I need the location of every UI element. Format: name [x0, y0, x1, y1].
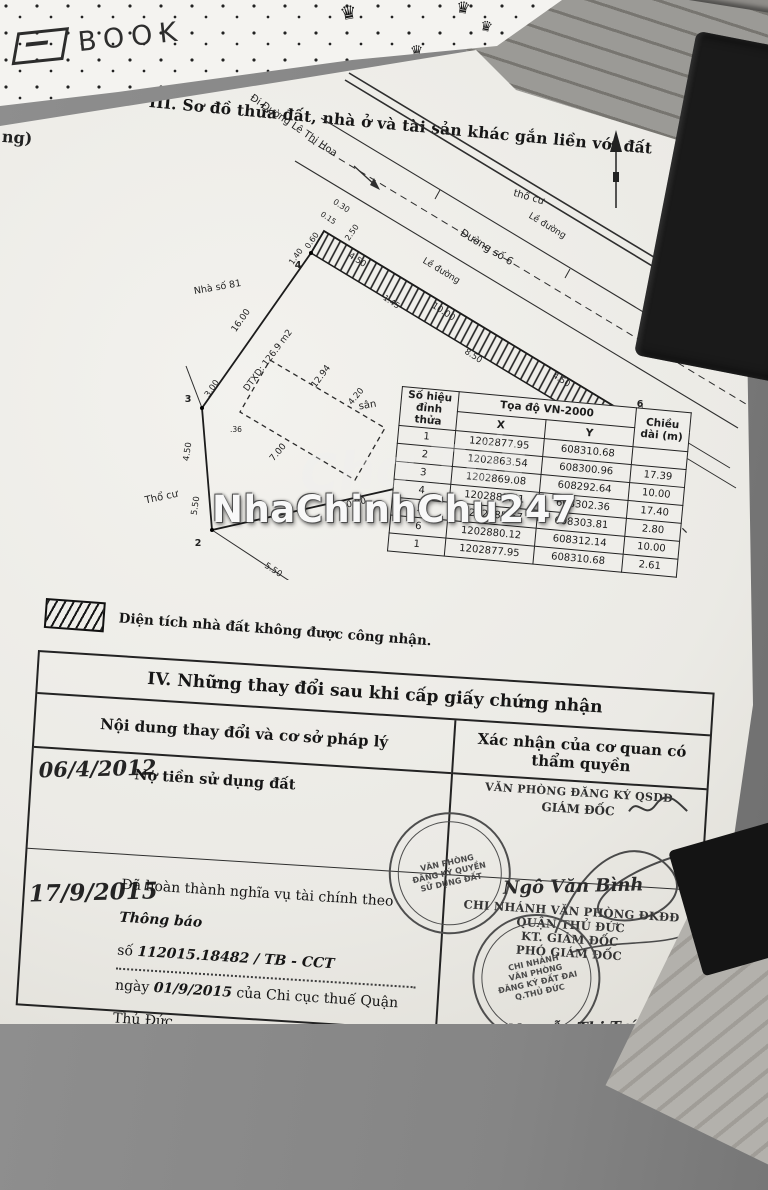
sidewalk-label: Lề đường: [421, 255, 462, 286]
dimension-label: 7.00: [268, 442, 289, 464]
printed-text: số: [117, 943, 134, 960]
dimension-label: 16.00: [230, 307, 253, 334]
land-type-label: Thổ cư: [143, 487, 180, 507]
dimension-label: 0.15: [319, 210, 338, 227]
dimension-label: 3.00: [203, 378, 222, 399]
vertex-dot: [309, 251, 313, 255]
col-header-length: Chiều dài (m): [633, 408, 691, 452]
dimension-label: 2.50: [343, 223, 361, 243]
cut-off-edge-text: ng): [1, 127, 33, 148]
vertex-number: 3: [185, 394, 192, 405]
handwritten-text: 112015.18482 / TB - CCT: [137, 944, 335, 972]
vertex-number: 2: [195, 538, 202, 549]
road-name-label: Đường số 6: [458, 227, 516, 268]
vertex-dot: [200, 406, 204, 410]
printed-text: Đã hoàn thành nghĩa vụ tài chính theo: [121, 877, 394, 910]
watermark: NhaChinhChu247: [212, 488, 577, 531]
col-header-vertex: Số hiệu đỉnh thửa: [399, 387, 459, 431]
crown-motif-icon: ♛: [455, 0, 471, 17]
dimension-label: 0.30: [331, 197, 351, 214]
handwritten-text: 01/9/2015: [153, 980, 232, 1001]
dimension-label: 4.50: [182, 442, 195, 462]
seal-text: Q.THỦ ĐỨC: [499, 979, 580, 1006]
vertex-number: 4: [295, 260, 302, 271]
north-arrow-tail: [613, 172, 619, 182]
seal-text: VĂN PHÒNG: [410, 851, 485, 877]
section4-table: IV. Những thay đổi sau khi cấp giấy chứn…: [16, 650, 715, 1048]
crown-motif-icon: ♛: [479, 19, 494, 35]
seal-text: ĐĂNG KÝ ĐẤT ĐAI: [497, 969, 578, 996]
built-area-label: DTXD: 126.9 m2: [242, 328, 295, 394]
dimension-label: 12.94: [310, 363, 334, 390]
seal-text: VĂN PHÒNG: [495, 959, 576, 986]
dimension-label: 5.50: [190, 496, 203, 516]
crown-motif-icon: ♛: [409, 44, 423, 60]
sidewalk-label: Lề đường: [527, 210, 568, 241]
street-name-label: Đi Đường Lê Thị Hoa: [248, 92, 340, 159]
legend-text: Diện tích nhà đất không được công nhận.: [118, 610, 432, 649]
printed-text: ngày: [115, 978, 150, 996]
hatch-sample-icon: [44, 598, 106, 632]
change-content: Đã hoàn thành nghĩa vụ tài chính theo Th…: [112, 869, 422, 1057]
north-arrow-icon: [610, 130, 622, 152]
neighbor-house-label: Nhà số 81: [193, 278, 242, 297]
brand-logo-icon: [12, 27, 69, 65]
yard-label: sân: [358, 398, 378, 413]
photo-of-land-certificate: { "photo": { "brand_text": "BOOK", "crow…: [0, 0, 768, 1024]
dimension-label: .36: [230, 425, 242, 434]
signature-squiggle: [626, 793, 692, 825]
handwritten-text: Thông báo: [119, 910, 203, 931]
change-row-2: 17/9/2015 Đã hoàn thành nghĩa vụ tài chí…: [18, 849, 445, 1031]
change-content: Nợ tiền sử dụng đất: [134, 766, 296, 793]
seal-text: CHI NHÁNH: [493, 950, 574, 977]
hatch-legend: Diện tích nhà đất không được công nhận.: [44, 598, 433, 656]
dimension-label: 5.50: [262, 561, 283, 580]
crown-motif-icon: ♛: [338, 3, 358, 25]
